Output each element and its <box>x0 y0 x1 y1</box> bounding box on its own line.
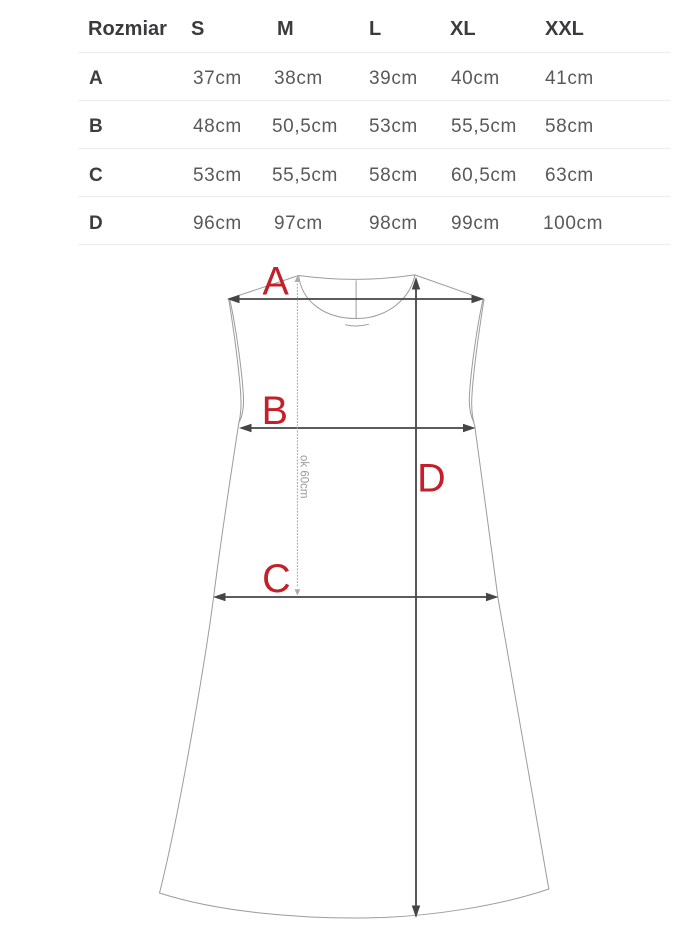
svg-text:C: C <box>262 557 291 601</box>
svg-text:A: A <box>263 260 290 304</box>
svg-text:ok 60cm: ok 60cm <box>298 455 310 498</box>
svg-text:B: B <box>262 389 288 433</box>
svg-text:D: D <box>417 456 446 500</box>
